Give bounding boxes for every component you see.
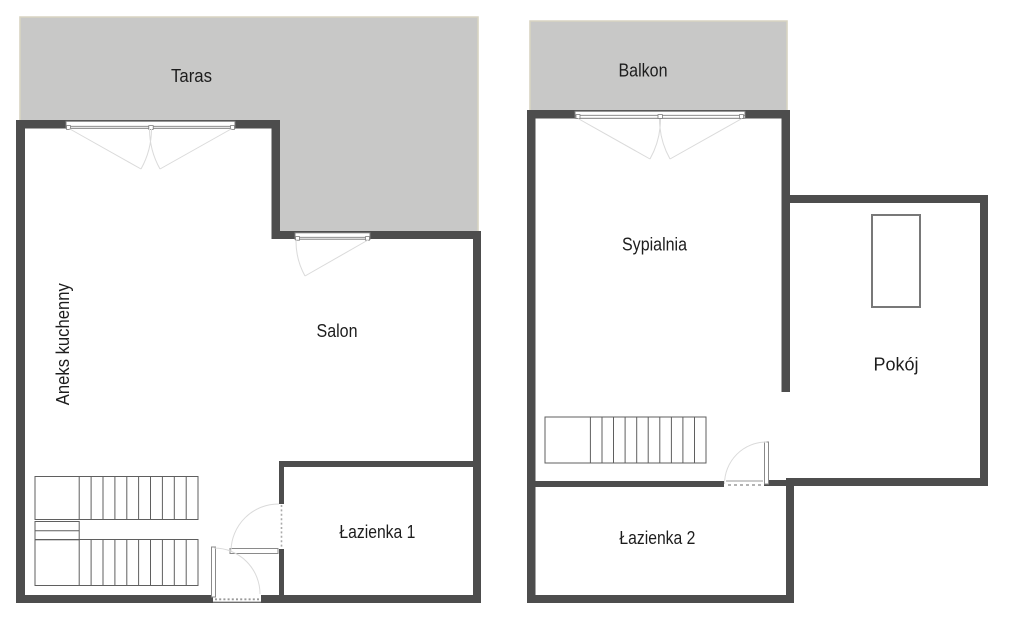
- svg-text:Taras: Taras: [171, 66, 212, 86]
- svg-text:Aneks kuchenny: Aneks kuchenny: [53, 283, 73, 405]
- svg-text:Sypialnia: Sypialnia: [622, 235, 688, 255]
- svg-text:Łazienka 2: Łazienka 2: [619, 528, 695, 548]
- svg-text:Łazienka 1: Łazienka 1: [339, 522, 415, 542]
- svg-text:Pokój: Pokój: [874, 355, 919, 375]
- svg-text:Salon: Salon: [317, 321, 358, 341]
- svg-text:Balkon: Balkon: [619, 61, 668, 81]
